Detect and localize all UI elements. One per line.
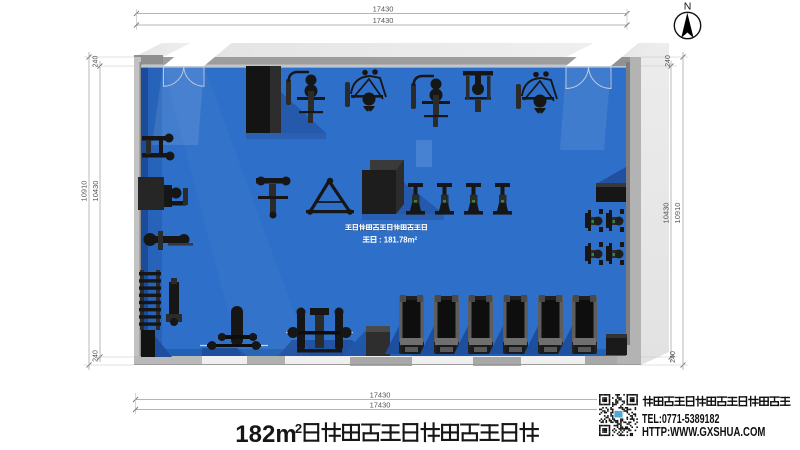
svg-text:17430: 17430 [373, 5, 394, 14]
svg-text:17430: 17430 [370, 401, 391, 410]
svg-text:17430: 17430 [373, 16, 394, 25]
svg-text:240: 240 [665, 55, 672, 67]
svg-text:2: 2 [295, 421, 302, 436]
svg-text:10430: 10430 [91, 181, 100, 202]
svg-text:N: N [684, 1, 692, 13]
svg-text:10910: 10910 [80, 181, 89, 202]
svg-text:TEL:0771-5389182: TEL:0771-5389182 [642, 413, 719, 427]
svg-text:10430: 10430 [662, 203, 671, 224]
svg-text:10910: 10910 [673, 203, 682, 224]
svg-text:HTTP:WWW.GXSHUA.COM: HTTP:WWW.GXSHUA.COM [642, 426, 765, 440]
svg-text:240: 240 [93, 350, 100, 362]
svg-text:: 181.78m²: : 181.78m² [379, 236, 418, 245]
svg-text:240: 240 [670, 351, 677, 363]
svg-text:240: 240 [93, 56, 100, 68]
svg-text:17430: 17430 [370, 391, 391, 400]
svg-text:182m: 182m [235, 421, 296, 448]
